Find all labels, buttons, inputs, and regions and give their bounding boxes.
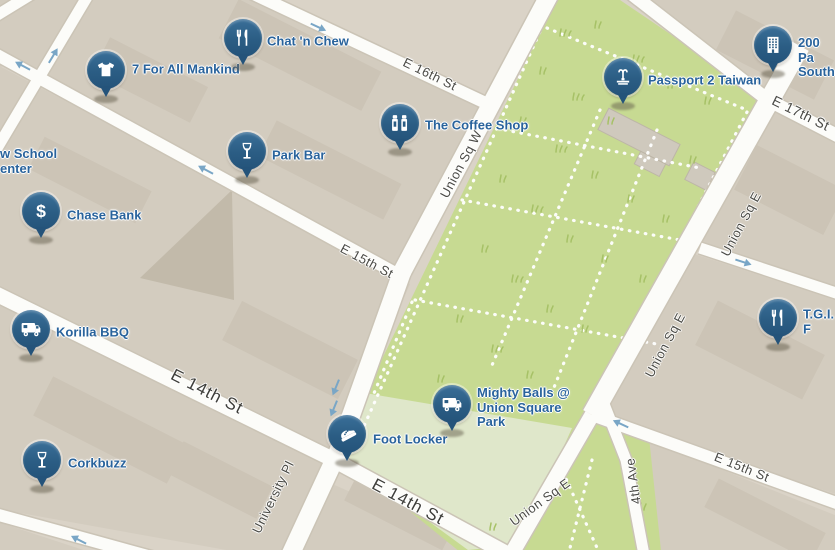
venue-label-chase-bank[interactable]: Chase Bank — [67, 209, 141, 224]
venue-label-korilla-bbq[interactable]: Korilla BBQ — [56, 326, 129, 341]
dollar-icon: $ — [30, 200, 52, 222]
map-pin-foot-locker[interactable] — [328, 415, 366, 453]
venue-label-7-for-all-mankind[interactable]: 7 For All Mankind — [132, 63, 240, 78]
svg-text:$: $ — [36, 201, 46, 221]
utensils-icon — [232, 27, 254, 49]
fountain-icon — [612, 66, 634, 88]
food-truck-icon — [441, 393, 463, 415]
building-icon — [762, 34, 784, 56]
venue-label-passport-2-taiwan[interactable]: Passport 2 Taiwan — [648, 74, 761, 89]
tshirt-icon — [95, 59, 117, 81]
map-pin-korilla-bbq[interactable] — [12, 310, 50, 348]
map-pin-chat-n-chew[interactable] — [224, 19, 262, 57]
map-canvas[interactable]: E 16th St E 15th St Union Sq W E 17th St… — [0, 0, 835, 550]
map-pin-passport-2-taiwan[interactable] — [604, 58, 642, 96]
map-pin-7-for-all-mankind[interactable] — [87, 51, 125, 89]
venue-label-corkbuzz[interactable]: Corkbuzz — [68, 457, 127, 472]
map-pin-chase-bank[interactable]: $ — [22, 192, 60, 230]
sneaker-icon — [336, 423, 358, 445]
venue-label-200-park-south[interactable]: 200 Pa South — [798, 36, 835, 80]
wine-glass-icon — [236, 140, 258, 162]
food-truck-icon — [20, 318, 42, 340]
map-pin-corkbuzz[interactable] — [23, 441, 61, 479]
shakers-icon — [389, 112, 411, 134]
map-pin-tgi[interactable] — [759, 299, 797, 337]
wine-glass-icon — [31, 449, 53, 471]
venue-label-mighty-balls[interactable]: Mighty Balls @ Union Square Park — [477, 386, 570, 430]
utensils-icon — [767, 307, 789, 329]
place-label-school-partial: w School enter — [0, 147, 57, 176]
venue-label-foot-locker[interactable]: Foot Locker — [373, 433, 447, 448]
venue-label-chat-n-chew[interactable]: Chat 'n Chew — [267, 35, 349, 50]
map-pin-the-coffee-shop[interactable] — [381, 104, 419, 142]
map-pin-park-bar[interactable] — [228, 132, 266, 170]
venue-label-tgi[interactable]: T.G.I. F — [803, 307, 835, 336]
venue-label-park-bar[interactable]: Park Bar — [272, 149, 325, 164]
map-pin-200-park-south[interactable] — [754, 26, 792, 64]
map-pin-mighty-balls[interactable] — [433, 385, 471, 423]
venue-label-the-coffee-shop[interactable]: The Coffee Shop — [425, 119, 528, 134]
